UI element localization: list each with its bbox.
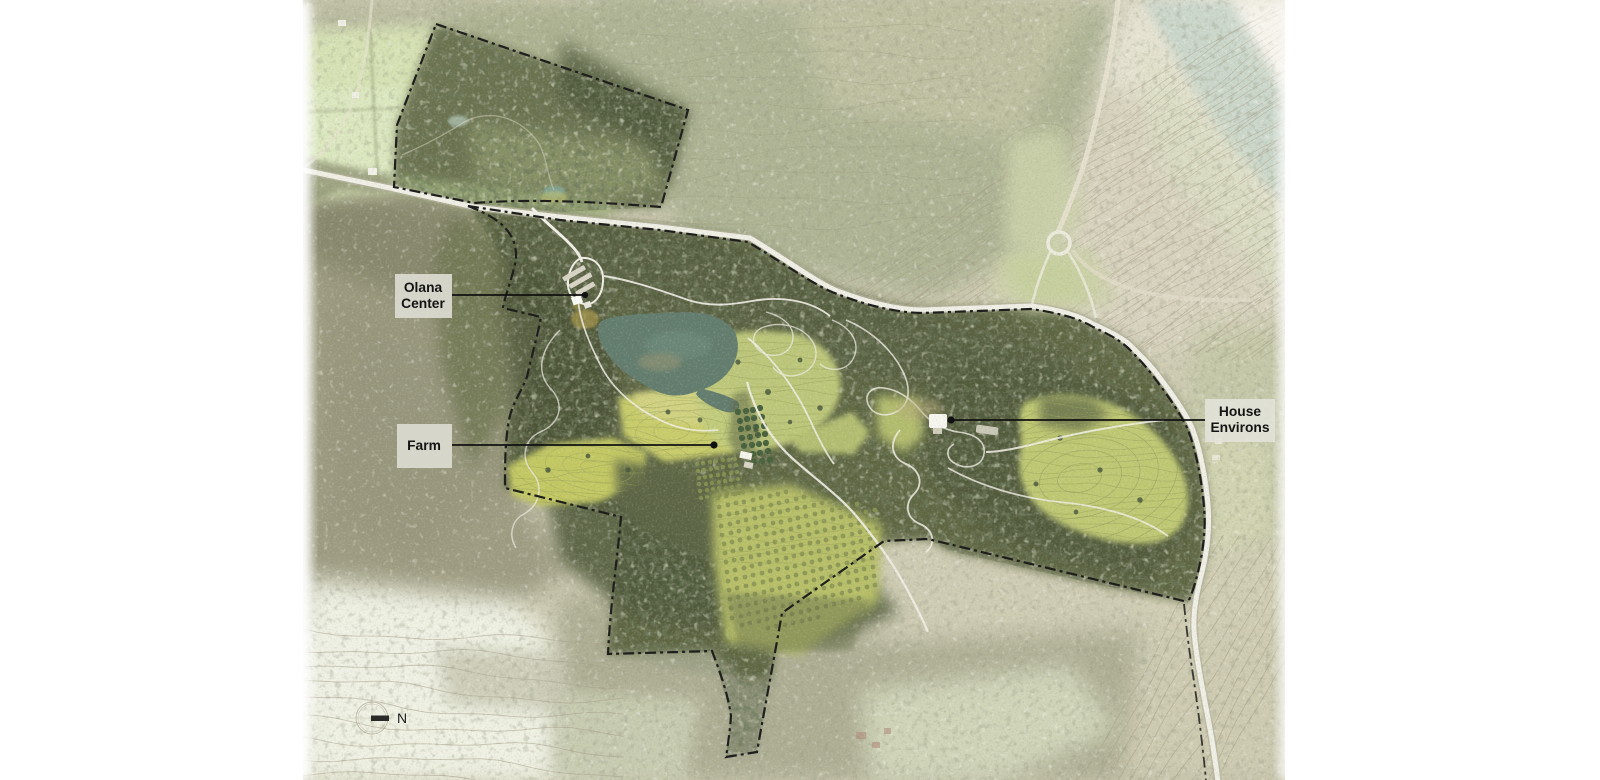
- svg-text:N: N: [397, 710, 407, 726]
- svg-text:House: House: [1219, 404, 1261, 419]
- svg-text:Olana: Olana: [404, 280, 443, 295]
- svg-text:Environs: Environs: [1210, 420, 1269, 435]
- svg-text:Farm: Farm: [407, 438, 441, 453]
- svg-text:Center: Center: [401, 296, 445, 311]
